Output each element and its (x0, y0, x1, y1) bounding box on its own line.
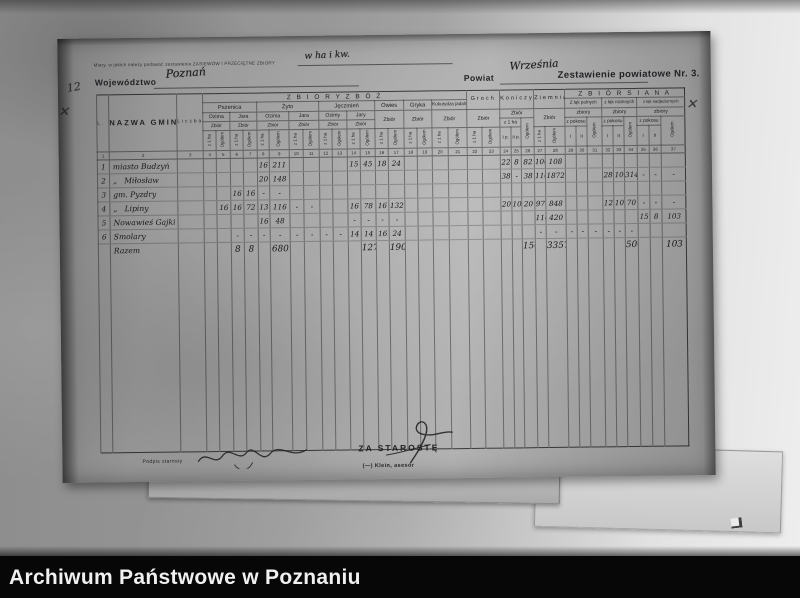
zbior-jeczmien-jary: Zbiór (347, 120, 375, 129)
zbior-groch: Zbiór (467, 109, 500, 127)
zyto-oz-z1ha: z 1 ha (257, 130, 269, 150)
psz-ja-z1ha: z 1 ha (230, 130, 243, 150)
archival-photo: 12 ✕ ✕ Miary, w jakich należy podawać ze… (0, 0, 800, 598)
powiat-label: Powiat (464, 73, 495, 83)
siana1-pokos-ii: II (576, 126, 587, 146)
siana1-z-pokosu: z pokosu (565, 117, 587, 126)
psz-oz-z1ha: z 1 ha (203, 131, 216, 151)
col-zyto-jare: Jara (289, 111, 319, 120)
deputy-signature (380, 418, 461, 465)
siana1-pokos-i: I (565, 126, 576, 146)
col-siana-polne: Z łąk polnych (565, 98, 602, 108)
kuku-z1ha: z 1 ha (432, 128, 448, 148)
wojewodztwo-value-handwritten: Poznań (165, 65, 206, 81)
zyto-ja-z1ha: z 1 ha (289, 130, 303, 150)
zbior-pszenica-jara: Zbiór (230, 121, 257, 130)
col-jeczmien: Jęczmień (319, 101, 375, 112)
zbior-pszenica-ozima: Zbiór (203, 121, 230, 130)
siana3-z-pokosu: z pokosu (637, 116, 661, 125)
podpis-starosty-label: Podpis starosty (142, 459, 182, 465)
siana3-ogolem: Ogółem (661, 116, 685, 145)
col-nazwa-gminy: NAZWA GMINY (108, 94, 177, 152)
col-groch: Groch (467, 90, 500, 109)
jecz-ja-ogolem: Ogółem (360, 129, 375, 149)
col-pszenica-jara: Jara (230, 112, 257, 121)
ziem-z1ha: z 1 ha (534, 127, 545, 147)
col-pszenica-ozima: Ozima (203, 112, 230, 121)
archive-name: Archiwum Państwowe w Poznaniu (0, 556, 800, 598)
jecz-oz-ogolem: Ogółem (332, 129, 347, 149)
col-liczba-gospodarstw: Liczba gospodarstw (176, 94, 203, 151)
gryka-z1ha: z 1 ha (404, 128, 417, 148)
col-zyto-ozime: Ozima (257, 112, 289, 121)
siana2-ogolem: Ogółem (624, 116, 637, 145)
jecz-ja-z1ha: z 1 ha (347, 129, 360, 149)
page-title: Zestawienie powiatowe Nr. 3. (510, 68, 700, 81)
psz-oz-ogolem: Ogółem (216, 130, 230, 150)
koniczyna-z1ha: z 1 ha (500, 118, 521, 127)
powiat-underline (500, 82, 648, 85)
zbior-jeczmien-ozimy: Zbiór (319, 120, 347, 129)
zbior-zyto-jare: Zbiór (289, 120, 319, 129)
table-body: 1234567891011121314151617181920212223242… (97, 145, 689, 453)
col-siana-nizinne: z łąk nizinnych (602, 97, 637, 107)
zbior-koniczyna: Zbiór (500, 109, 534, 118)
zbiory-siana1: zbiory (565, 108, 602, 117)
corner-number: 12 (66, 80, 82, 95)
document-page: 12 ✕ ✕ Miary, w jakich należy podawać ze… (57, 31, 715, 483)
document-top-shadow (57, 31, 710, 46)
paper-chip (731, 517, 743, 528)
koniczyna-ip: I p. (500, 127, 511, 147)
zbior-ziemniaki: Zbiór (534, 108, 565, 126)
groch-ogolem: Ogółem (482, 127, 500, 147)
starosta-signature (194, 442, 314, 469)
siana2-pokos-ii: II (613, 126, 624, 146)
measures-value-handwritten: w ha i kw. (304, 50, 350, 62)
koniczyna-iip: II p. (511, 127, 521, 147)
archive-caption-bar: Archiwum Państwowe w Poznaniu (0, 556, 800, 598)
wojewodztwo-underline (154, 85, 359, 89)
zbior-zyto-ozime: Zbiór (257, 121, 289, 130)
statistics-table: L. p. NAZWA GMINY Liczba gospodarstw Z B… (96, 87, 689, 453)
col-koniczyna: Koniczyna (500, 90, 534, 109)
table-header: L. p. NAZWA GMINY Liczba gospodarstw Z B… (96, 88, 685, 152)
col-lp: L. p. (96, 95, 109, 152)
zyto-ja-ogolem: Ogółem (303, 129, 319, 149)
wojewodztwo-label: Województwo (95, 77, 157, 88)
photo-bottom-edge (0, 546, 800, 556)
signed-by-label: (—) Klein, asesor (363, 463, 415, 470)
koniczyna-ogolem: Ogółem (521, 118, 534, 147)
jecz-oz-z1ha: z 1 ha (319, 129, 332, 149)
col-jeczmien-jary: Jary (347, 111, 375, 120)
col-jeczmien-ozimy: Ozimy (319, 111, 347, 120)
col-kukurydza: Kukurydza jadalna (432, 100, 467, 110)
owies-ogolem: Ogółem (388, 128, 404, 148)
cross-mark-right-icon: ✕ (686, 97, 697, 112)
col-siana-nadjeziorne: z łąk nadjeziornych (637, 97, 685, 108)
groch-z1ha: z 1 ha (467, 127, 482, 147)
zbior-gryka: Zbiór (404, 110, 432, 128)
col-gryka: Gryka (404, 100, 432, 110)
zbiory-siana2: zbiory (602, 107, 637, 116)
zyto-oz-ogolem: Ogółem (269, 130, 289, 150)
cross-mark-left-icon: ✕ (58, 105, 69, 120)
siana3-pokos-i: I (637, 125, 649, 145)
siana1-ogolem: Ogółem (587, 117, 602, 146)
siana2-z-pokosu: z pokosu (602, 117, 624, 126)
gryka-ogolem: Ogółem (417, 128, 432, 148)
siana3-pokos-ii: II (649, 125, 661, 145)
siana2-pokos-i: I (602, 126, 613, 146)
zbior-kukurydza: Zbiór (432, 110, 467, 128)
col-pszenica: Pszenica (203, 102, 257, 113)
ziem-ogolem: Ogółem (545, 126, 565, 146)
col-owies: Owies (375, 100, 404, 110)
owies-z1ha: z 1 ha (375, 128, 388, 148)
kuku-ogolem: Ogółem (448, 128, 467, 148)
psz-ja-ogolem: Ogółem (243, 130, 257, 150)
zbior-owies: Zbiór (375, 110, 404, 128)
col-ziemniaki: Ziemniaki (534, 89, 565, 108)
